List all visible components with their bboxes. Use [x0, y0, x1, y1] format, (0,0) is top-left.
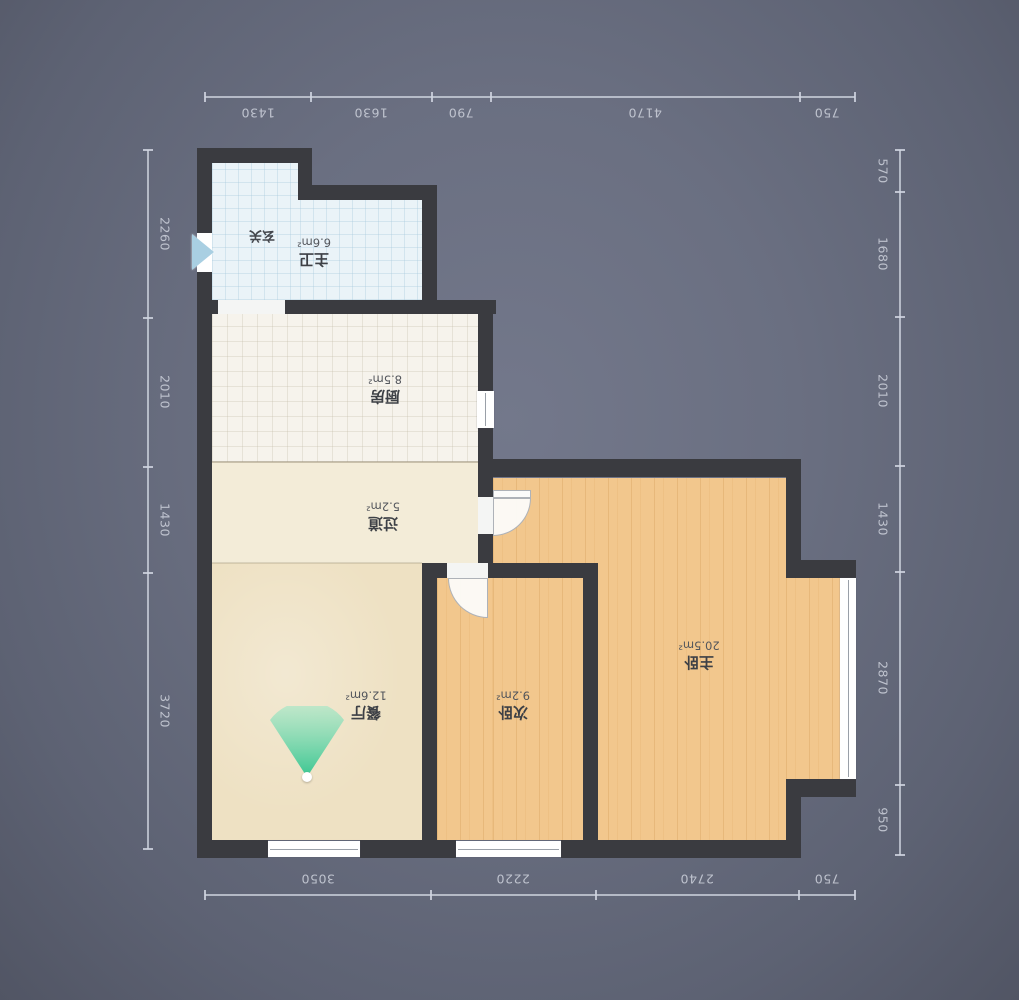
dim-bottom-2: 2740: [680, 872, 714, 887]
tick: [310, 92, 312, 102]
wall-bath-bottom-2: [285, 300, 496, 314]
master-door-leaf: [493, 490, 531, 498]
wall-bed2-left: [422, 563, 437, 840]
dim-left-3: 3720: [158, 694, 173, 728]
wall-bed2-top-2: [488, 563, 598, 578]
wall-bottom-2: [360, 840, 456, 858]
dim-line-left: [147, 150, 149, 849]
dim-line-top: [205, 96, 855, 98]
master-bath-name: 主卫: [297, 250, 331, 269]
tick: [143, 317, 153, 319]
tick: [490, 92, 492, 102]
label-foyer: 玄关: [249, 228, 275, 247]
tick: [799, 92, 801, 102]
master-bath-area: 6.6m²: [297, 235, 331, 249]
dim-left-1: 2010: [158, 375, 173, 409]
tick: [595, 890, 597, 900]
master-bedroom-name: 主卧: [678, 653, 719, 672]
dim-top-1: 1630: [354, 106, 388, 121]
wall-bay-top: [786, 560, 856, 578]
dining-window: [268, 841, 360, 857]
hallway-name: 过道: [366, 514, 400, 533]
wall-top-a: [197, 148, 312, 163]
hall-dining-boundary: [212, 562, 422, 564]
hallway-area: 5.2m²: [366, 499, 400, 513]
tick: [854, 92, 856, 102]
dim-right-4: 2870: [876, 661, 891, 695]
tick: [895, 571, 905, 573]
kitchen-hall-boundary: [212, 461, 478, 463]
second-bedroom-area: 9.2m²: [496, 688, 530, 702]
dim-right-1: 1680: [876, 237, 891, 271]
dim-top-0: 1430: [241, 106, 275, 121]
label-dining: 餐厅 12.6m²: [345, 688, 386, 721]
kitchen-name: 厨房: [368, 387, 402, 406]
camera-position-dot: [302, 772, 312, 782]
kitchen-floor: [212, 314, 478, 462]
bed2-door-opening: [447, 563, 488, 578]
tick: [895, 465, 905, 467]
tick: [895, 191, 905, 193]
wall-left-1: [197, 148, 212, 233]
tick: [431, 92, 433, 102]
bath-door-opening: [218, 300, 285, 314]
dim-line-bottom: [205, 894, 855, 896]
wall-kitchen-right-1: [478, 300, 493, 391]
dim-right-5: 950: [876, 807, 891, 832]
master-bedroom-area: 20.5m²: [678, 638, 719, 652]
dim-right-3: 1430: [876, 502, 891, 536]
tick: [204, 92, 206, 102]
tick: [895, 149, 905, 151]
wall-top-b: [298, 185, 437, 200]
label-master-bath: 主卫 6.6m²: [297, 235, 331, 268]
tick: [798, 890, 800, 900]
tick: [143, 466, 153, 468]
dim-left-2: 1430: [158, 503, 173, 537]
dim-bottom-0: 3050: [301, 872, 335, 887]
dim-top-4: 750: [814, 106, 839, 121]
tick: [854, 890, 856, 900]
master-bedroom-bay-floor: [786, 578, 840, 779]
dim-right-2: 2010: [876, 374, 891, 408]
label-hallway: 过道 5.2m²: [366, 499, 400, 532]
second-bedroom-window: [456, 841, 561, 857]
dim-bottom-1: 2220: [496, 872, 530, 887]
tick: [143, 848, 153, 850]
hallway-floor: [212, 462, 478, 563]
second-bedroom-name: 次卧: [496, 703, 530, 722]
master-door-opening: [478, 497, 493, 534]
tick: [895, 784, 905, 786]
floorplan-canvas: 玄关 主卫 6.6m² 厨房 8.5m² 过道 5.2m² 餐厅 12.6m² …: [0, 0, 1019, 1000]
entrance-arrow-icon: [192, 234, 214, 270]
label-master-bedroom: 主卧 20.5m²: [678, 638, 719, 671]
tick: [143, 572, 153, 574]
dining-name: 餐厅: [345, 703, 386, 722]
dim-top-3: 4170: [628, 106, 662, 121]
tick: [204, 890, 206, 900]
kitchen-window: [477, 391, 494, 428]
tick: [430, 890, 432, 900]
tick: [143, 149, 153, 151]
wall-bed2-right: [583, 563, 598, 840]
dim-line-right: [899, 150, 901, 855]
dining-area: 12.6m²: [345, 688, 386, 702]
tick: [895, 316, 905, 318]
master-bay-window: [840, 578, 856, 779]
label-second-bedroom: 次卧 9.2m²: [496, 688, 530, 721]
tick: [895, 854, 905, 856]
dim-bottom-3: 750: [814, 872, 839, 887]
wall-master-top: [478, 459, 801, 477]
dining-floor: [212, 563, 422, 840]
wall-left-2: [197, 272, 212, 858]
label-kitchen: 厨房 8.5m²: [368, 372, 402, 405]
wall-bottom-3: [561, 840, 801, 858]
wall-bath-right: [422, 185, 437, 314]
kitchen-area: 8.5m²: [368, 372, 402, 386]
dim-left-0: 2260: [158, 217, 173, 251]
master-bedroom-floor: [493, 478, 786, 840]
dim-right-0: 570: [876, 158, 891, 183]
dim-top-2: 790: [448, 106, 473, 121]
